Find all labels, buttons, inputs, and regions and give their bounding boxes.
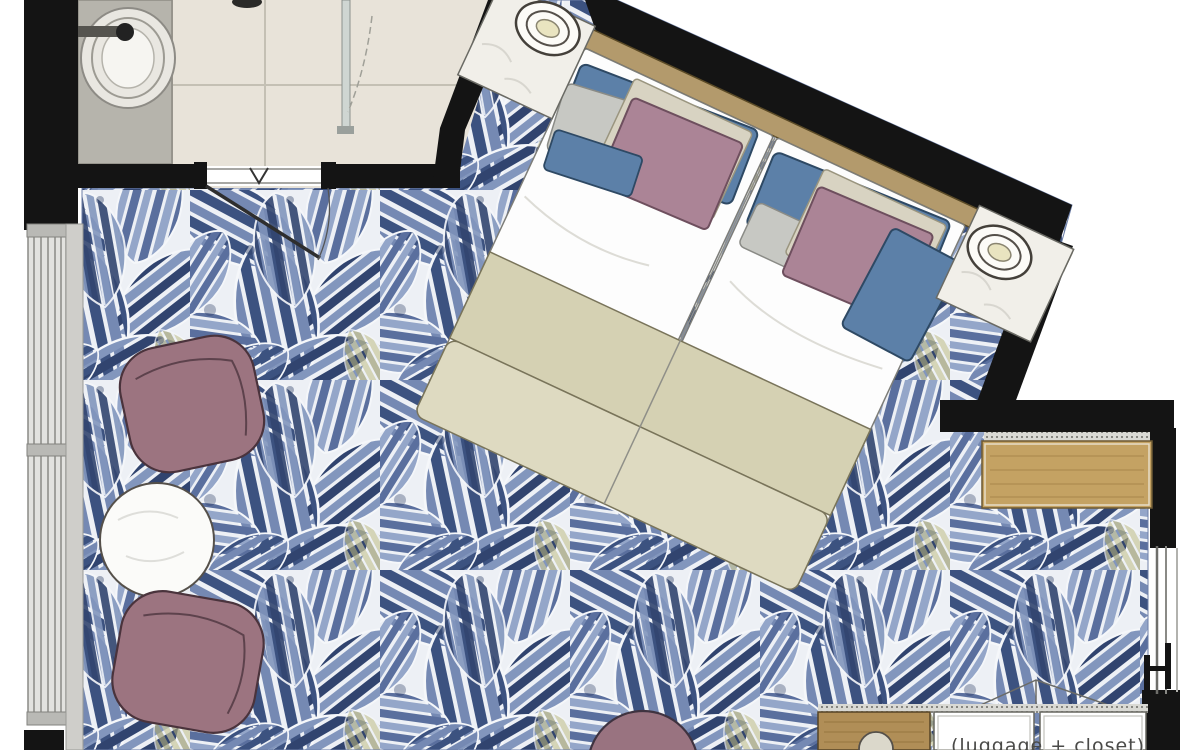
- wall-desk-north: [940, 400, 1174, 432]
- floorplan-canvas: (luggage + closet): [0, 0, 1200, 750]
- window-left: [27, 224, 83, 750]
- wall-bath-south-left: [76, 164, 200, 188]
- floorplan: (luggage + closet): [0, 0, 1200, 750]
- window-cap-bottom: [27, 712, 67, 725]
- door-jamb: [321, 162, 336, 189]
- desk-console: [982, 432, 1152, 508]
- armchair-lower: [106, 585, 271, 740]
- door-jamb: [194, 162, 207, 189]
- shower-glass-post: [337, 126, 354, 134]
- round-side-table: [100, 483, 214, 597]
- window-sill: [66, 224, 83, 750]
- faucet-head: [116, 23, 134, 41]
- wall-left-upper: [24, 0, 78, 230]
- desk-top: [982, 441, 1152, 508]
- window-cap-top: [27, 224, 67, 237]
- shower-glass: [342, 0, 350, 128]
- door-handle-icon: [1144, 655, 1150, 690]
- window-divider: [27, 444, 67, 456]
- wall-right-lower: [1142, 690, 1180, 750]
- closet-annotation: (luggage + closet): [951, 735, 1145, 750]
- wall-left-lower: [24, 730, 64, 750]
- wall-right-upper: [1150, 428, 1176, 548]
- door-handle-icon: [1150, 666, 1166, 671]
